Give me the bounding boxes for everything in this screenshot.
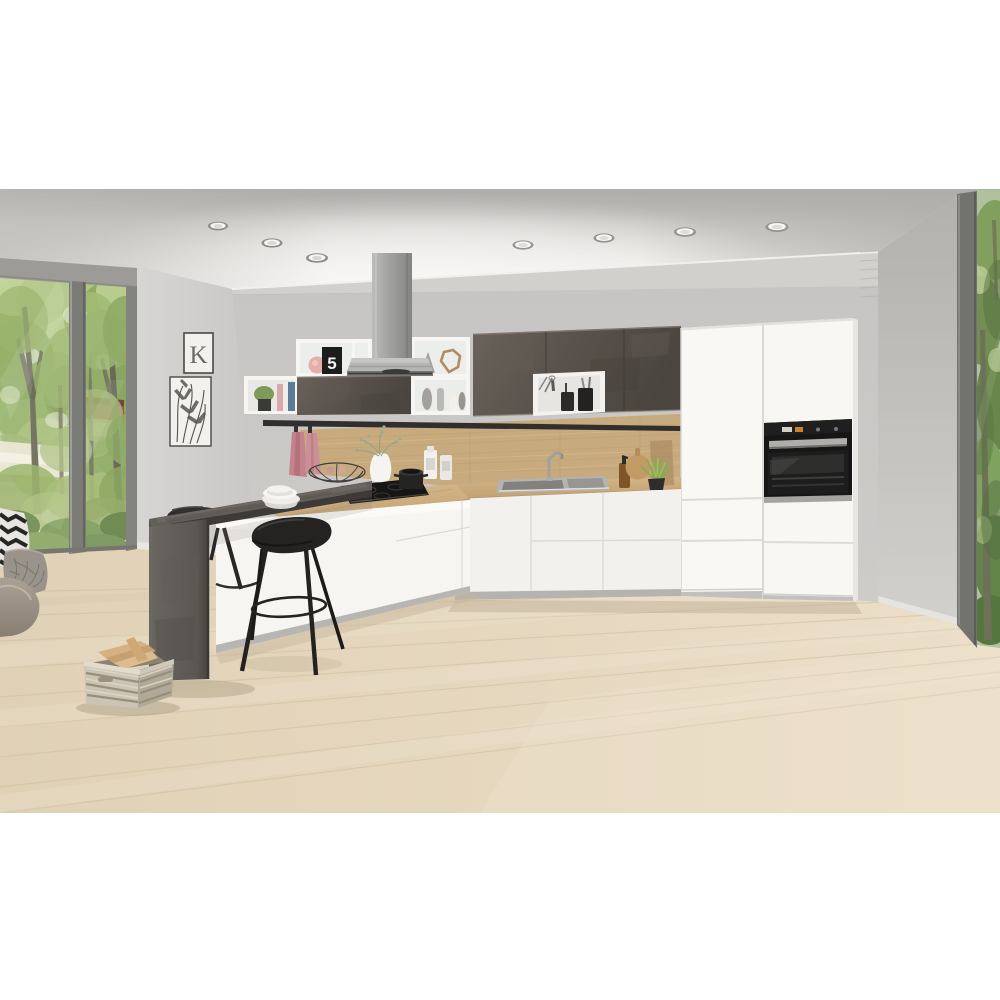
- svg-text:K: K: [189, 342, 207, 369]
- svg-text:5: 5: [327, 354, 336, 373]
